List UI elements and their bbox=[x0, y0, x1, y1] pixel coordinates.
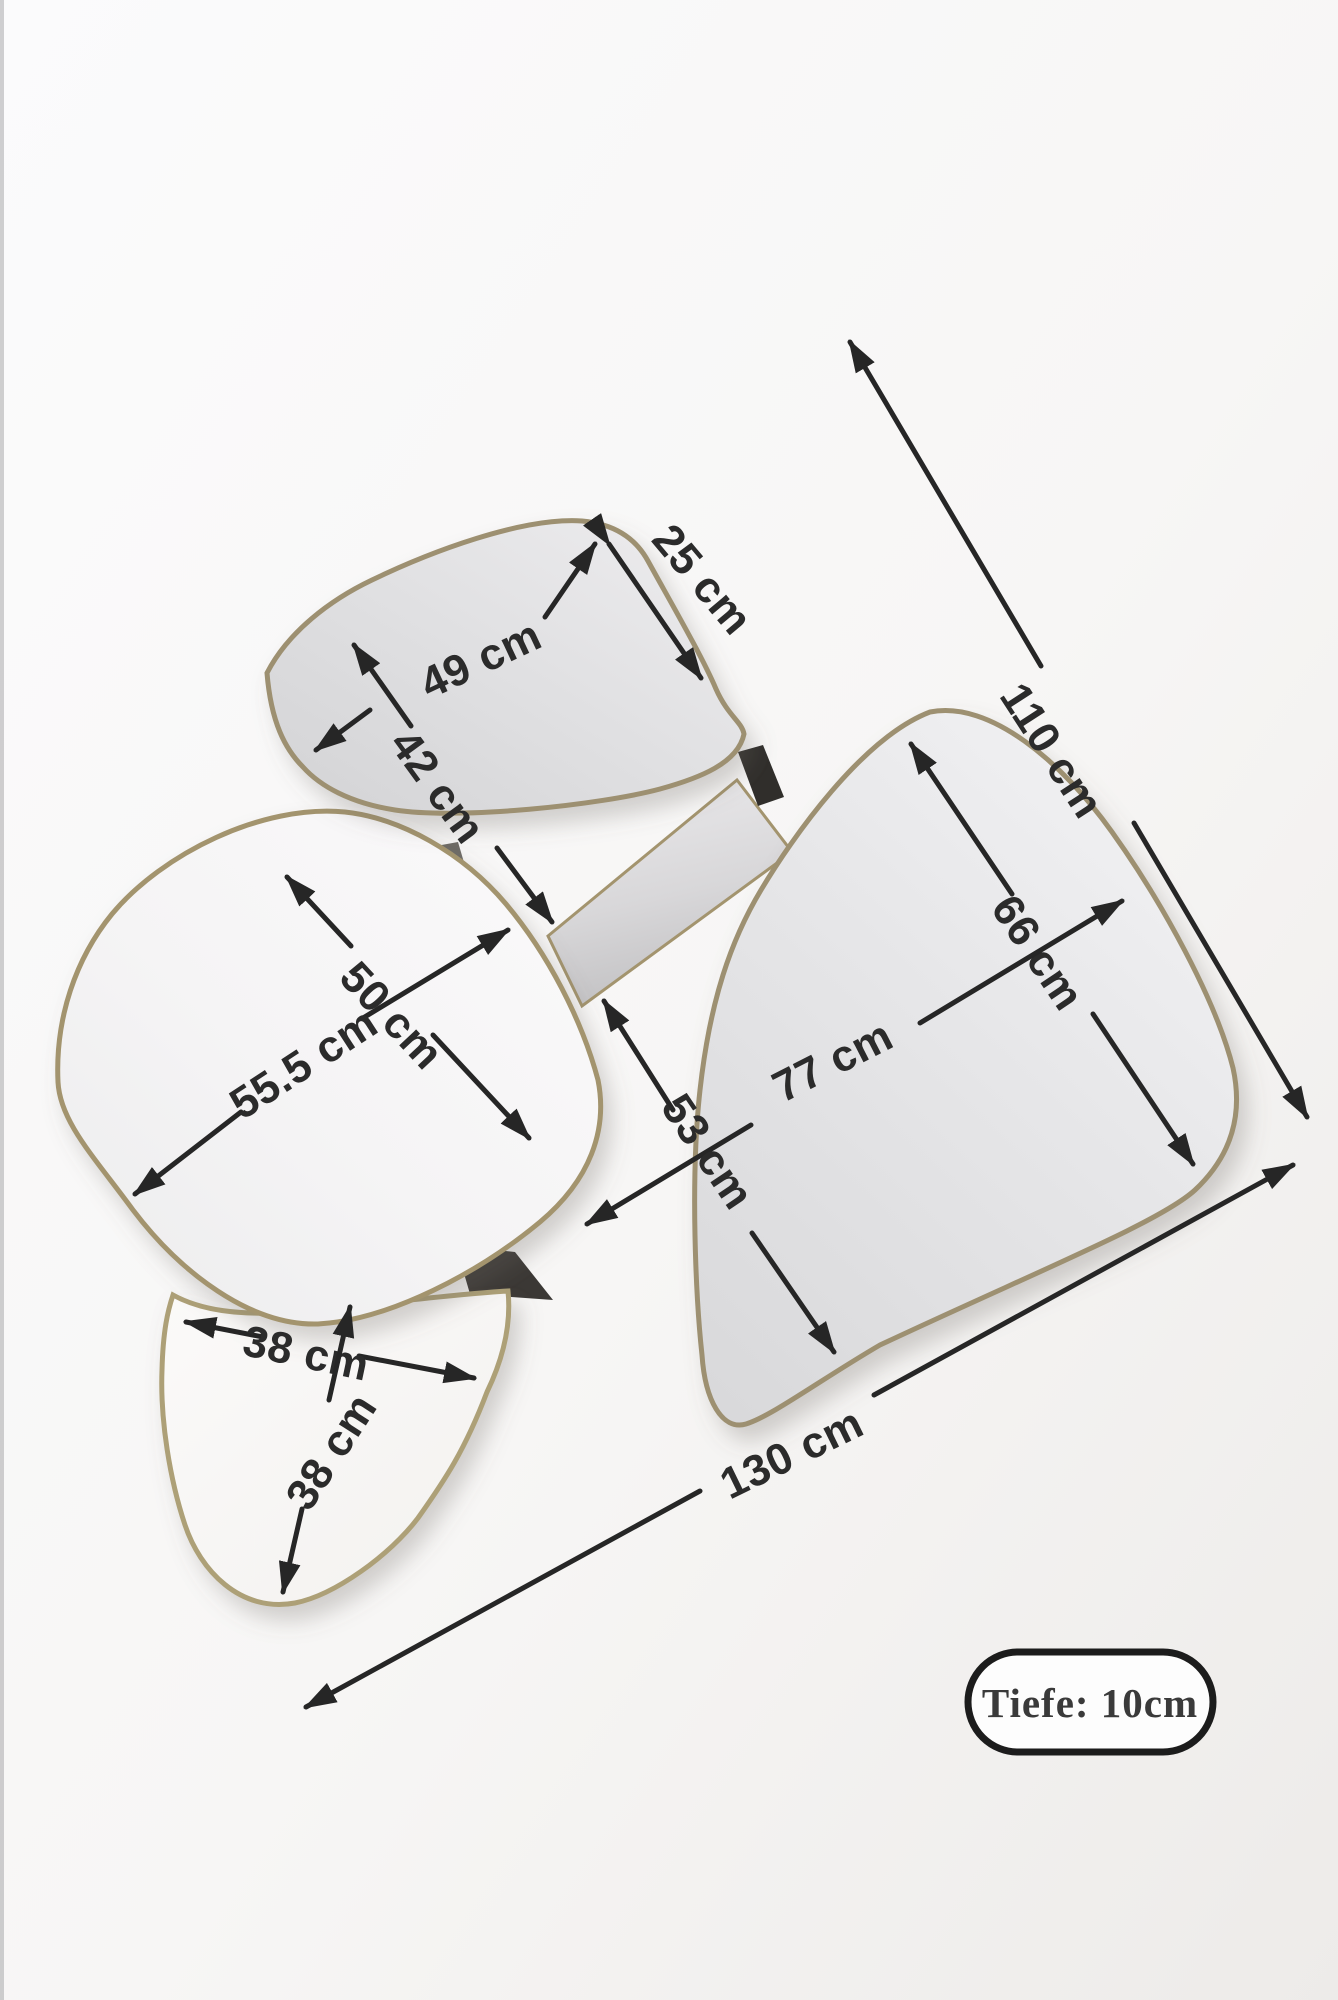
screenshot-root: 25 cm 49 cm 42 cm 110 cm 66 cm 77 cm bbox=[0, 0, 1338, 2000]
dimension-diagram-canvas: 25 cm 49 cm 42 cm 110 cm 66 cm 77 cm bbox=[0, 0, 1338, 2000]
depth-badge-label: Tiefe: 10cm bbox=[982, 1680, 1198, 1726]
depth-badge: Tiefe: 10cm bbox=[968, 1652, 1213, 1752]
left-edge-artifact bbox=[0, 0, 4, 2000]
